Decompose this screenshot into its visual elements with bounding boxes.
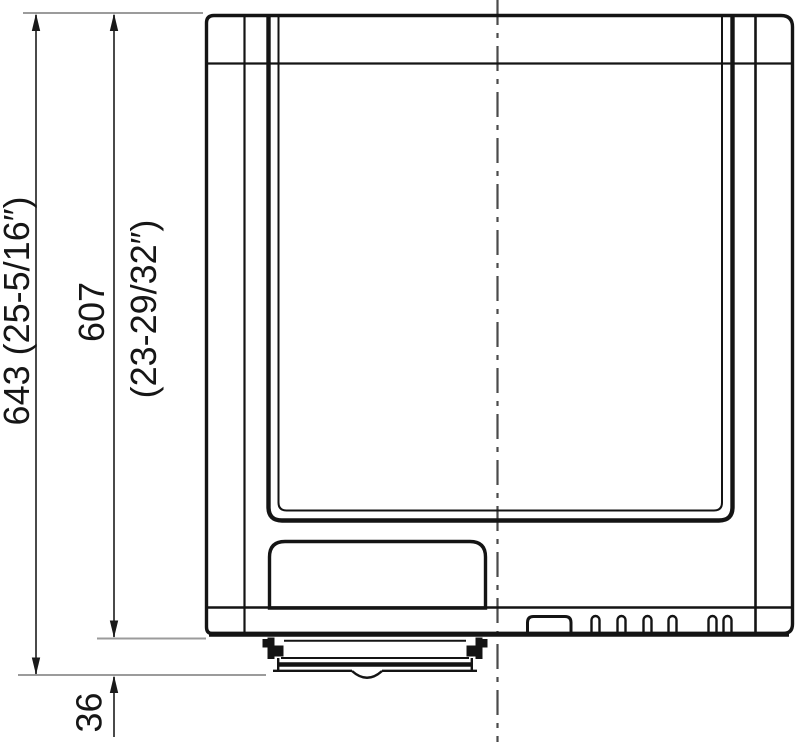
vent-slots [528,616,732,635]
arrow-up-icon [110,676,118,694]
dimension-arrowheads [32,14,118,694]
arrow-up-icon [110,14,118,32]
base-right-hook [467,638,488,660]
control-panel-outline [270,542,486,609]
dimension-labels: 643 (25-5/16″) 607 (23-29/32″) 36 [0,197,164,733]
drawing-canvas: 643 (25-5/16″) 607 (23-29/32″) 36 [0,0,800,742]
lid-outer-outline [269,14,733,521]
vent-slot [724,616,732,635]
base-assembly [263,638,488,678]
body-outline [206,14,793,634]
vent-slot [669,616,677,635]
vent-slot [618,616,626,635]
base-height-label: 36 [69,692,110,732]
cabinet-height-label-inches: (23-29/32″) [123,220,164,399]
lid-inner-outline [279,14,723,511]
arrow-down-icon [110,621,118,638]
arrow-down-icon [32,658,40,675]
base-center-tab [352,671,382,678]
vent-slot [644,616,652,635]
dimension-drawing: 643 (25-5/16″) 607 (23-29/32″) 36 [0,0,800,742]
vent-slot [592,616,600,635]
arrow-up-icon [32,14,40,32]
vent-slot [709,616,717,635]
base-left-hook [263,638,284,660]
vent-slot-wide [528,617,572,635]
overall-height-label: 643 (25-5/16″) [0,197,37,426]
dimension-lines [36,15,114,737]
base-bar [273,641,477,678]
cabinet-height-label-mm: 607 [71,282,112,342]
